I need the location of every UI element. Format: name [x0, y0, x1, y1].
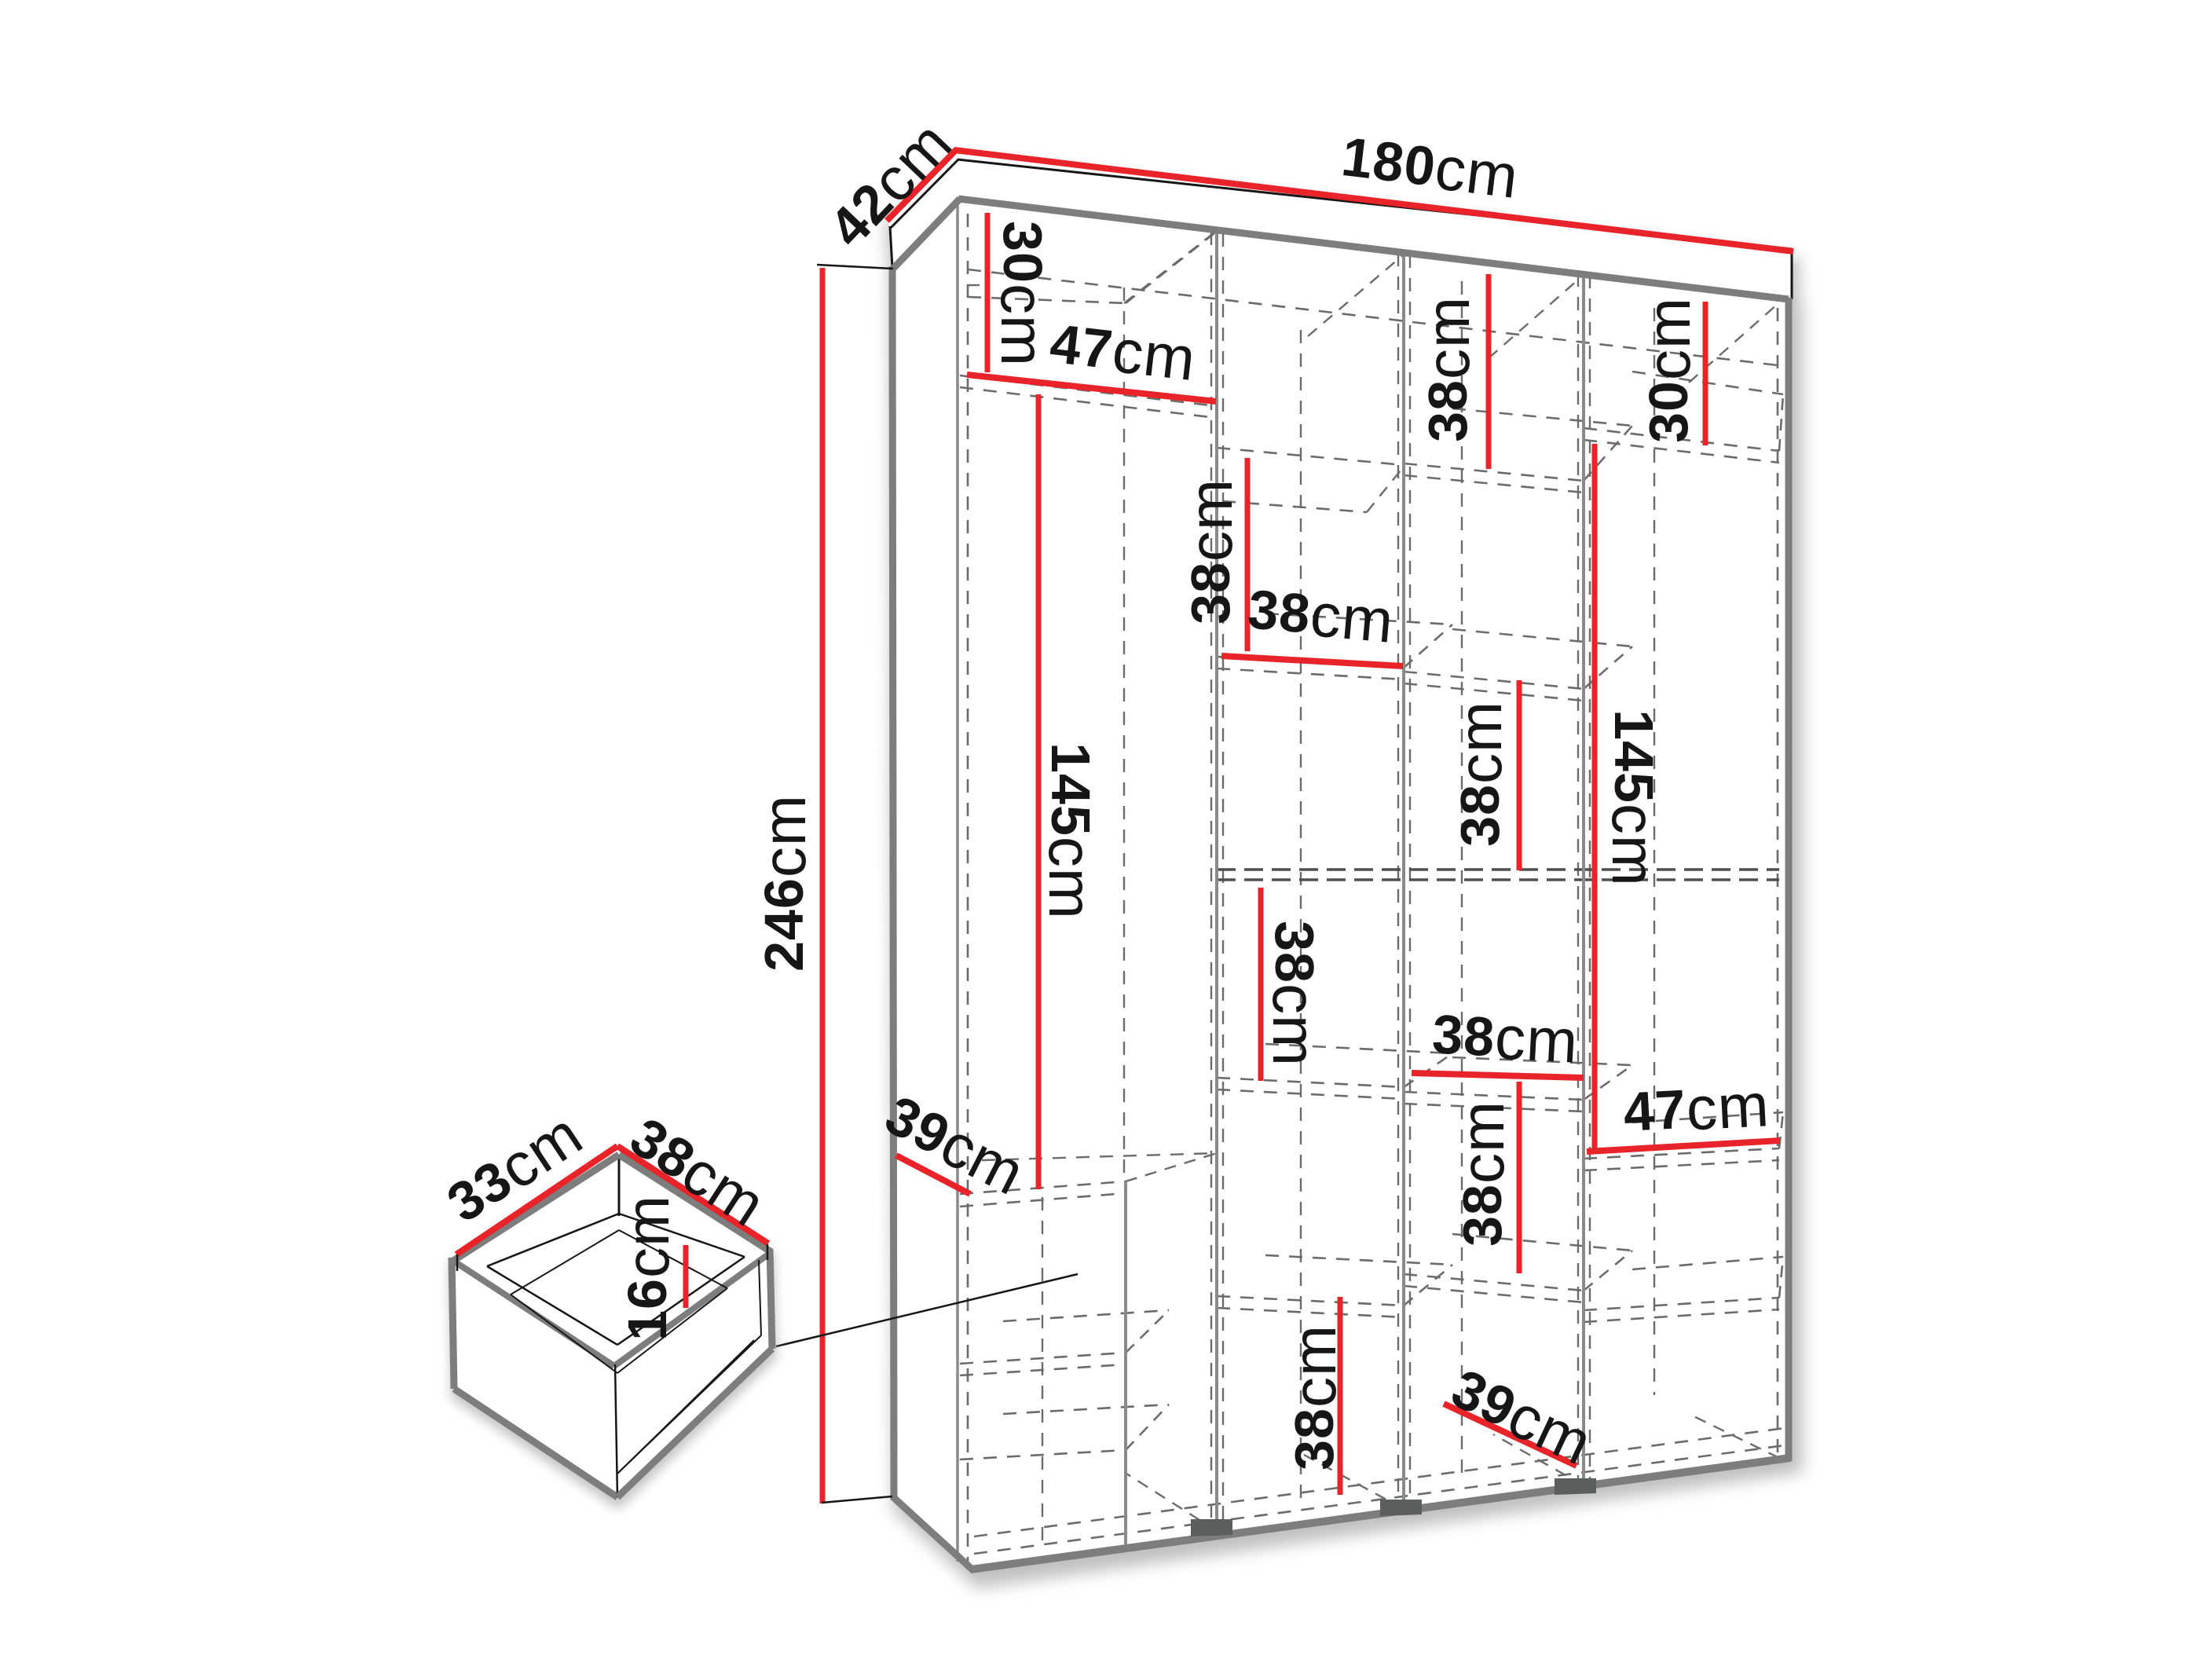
svg-text:16cm: 16cm	[613, 1195, 682, 1341]
svg-text:38cm: 38cm	[1430, 999, 1580, 1076]
svg-text:38cm: 38cm	[1260, 921, 1329, 1067]
svg-text:30cm: 30cm	[988, 221, 1057, 367]
svg-text:38cm: 38cm	[1448, 1101, 1517, 1247]
svg-text:145cm: 145cm	[1599, 709, 1668, 887]
svg-text:145cm: 145cm	[1036, 742, 1105, 920]
svg-text:38cm: 38cm	[1445, 701, 1514, 847]
svg-text:38cm: 38cm	[1176, 478, 1245, 624]
svg-text:47cm: 47cm	[1622, 1070, 1771, 1147]
svg-text:30cm: 30cm	[1634, 297, 1703, 443]
svg-text:38cm: 38cm	[1280, 1324, 1349, 1470]
svg-text:246cm: 246cm	[749, 794, 819, 972]
svg-text:38cm: 38cm	[1413, 296, 1482, 442]
